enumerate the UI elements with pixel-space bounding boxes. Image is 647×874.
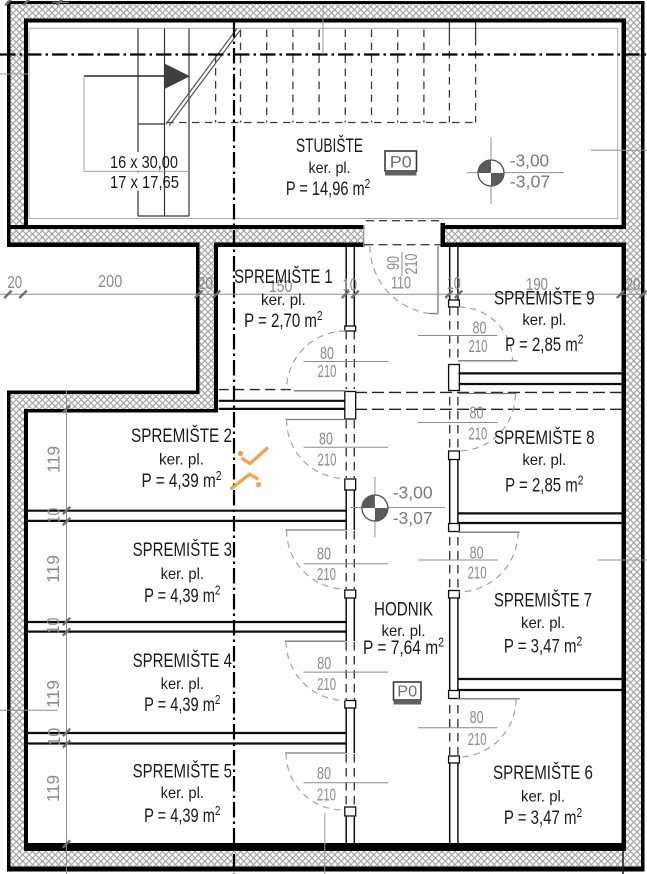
svg-text:P = 2,85 m2: P = 2,85 m2 [505,333,583,356]
svg-text:ker. pl.: ker. pl. [309,159,351,177]
svg-text:ker. pl.: ker. pl. [161,565,204,583]
svg-text:ker. pl.: ker. pl. [161,675,204,693]
svg-text:210: 210 [402,254,422,275]
svg-text:20: 20 [7,273,22,292]
svg-text:-3,00: -3,00 [510,151,549,171]
svg-text:80: 80 [320,344,334,364]
svg-text:P = 7,64 m2: P = 7,64 m2 [363,635,444,659]
svg-text:10: 10 [45,617,64,633]
svg-text:P = 4,39 m2: P = 4,39 m2 [144,583,220,606]
svg-text:STUBIŠTE: STUBIŠTE [296,135,363,157]
svg-text:SPREMIŠTE 6: SPREMIŠTE 6 [493,761,593,783]
svg-text:HODNIK: HODNIK [374,598,433,620]
svg-text:16 x 30,00: 16 x 30,00 [110,153,178,173]
svg-text:ker. pl.: ker. pl. [522,452,566,470]
svg-text:90: 90 [384,256,404,270]
svg-text:80: 80 [470,403,484,423]
svg-text:210: 210 [317,786,336,805]
svg-text:SPREMIŠTE 3: SPREMIŠTE 3 [133,539,232,560]
svg-text:P = 2,85 m2: P = 2,85 m2 [505,473,583,496]
svg-text:P0: P0 [397,683,417,701]
svg-text:ker. pl.: ker. pl. [522,312,566,330]
svg-text:-3,07: -3,07 [510,172,551,192]
svg-text:210: 210 [468,425,487,444]
svg-text:20: 20 [198,274,213,293]
svg-text:P = 14,96 m2: P = 14,96 m2 [286,178,370,200]
svg-text:80: 80 [317,764,331,784]
svg-text:80: 80 [470,708,484,728]
svg-text:119: 119 [43,680,63,708]
svg-text:210: 210 [468,564,487,583]
svg-text:210: 210 [317,676,336,695]
svg-text:P = 2,70 m2: P = 2,70 m2 [244,309,322,332]
svg-text:119: 119 [43,446,63,473]
svg-text:SPREMIŠTE 4: SPREMIŠTE 4 [133,650,233,671]
svg-text:119: 119 [43,775,63,802]
svg-text:210: 210 [469,338,488,357]
svg-text:P = 3,47 m2: P = 3,47 m2 [504,634,582,657]
svg-text:80: 80 [317,654,331,674]
svg-text:10: 10 [447,274,461,294]
svg-text:SPREMIŠTE 8: SPREMIŠTE 8 [494,426,595,448]
svg-text:210: 210 [468,731,487,750]
svg-text:ker. pl.: ker. pl. [159,451,204,468]
svg-text:SPREMIŠTE 2: SPREMIŠTE 2 [131,425,232,447]
svg-text:110: 110 [391,274,411,294]
svg-text:SPREMIŠTE 1: SPREMIŠTE 1 [234,266,333,287]
svg-text:17 x 17,65: 17 x 17,65 [110,173,179,193]
svg-text:P = 4,39 m2: P = 4,39 m2 [144,804,220,827]
svg-text:80: 80 [319,430,333,450]
svg-text:P = 3,47 m2: P = 3,47 m2 [504,806,582,829]
svg-text:SPREMIŠTE 5: SPREMIŠTE 5 [133,761,232,782]
svg-text:20: 20 [625,275,640,294]
svg-text:119: 119 [43,555,63,583]
svg-text:200: 200 [98,272,122,292]
svg-text:210: 210 [318,451,337,470]
svg-text:SPREMIŠTE 9: SPREMIŠTE 9 [494,287,595,309]
svg-text:SPREMIŠTE 7: SPREMIŠTE 7 [494,590,592,611]
svg-text:10: 10 [45,728,65,746]
svg-text:-3,07: -3,07 [393,508,433,528]
svg-text:P0: P0 [390,152,412,171]
svg-text:10: 10 [343,276,358,295]
svg-text:ker. pl.: ker. pl. [521,615,565,633]
svg-text:ker. pl.: ker. pl. [261,292,306,309]
svg-text:80: 80 [317,545,331,565]
svg-text:10: 10 [45,508,64,524]
svg-text:210: 210 [317,566,336,585]
svg-text:ker. pl.: ker. pl. [521,788,565,806]
svg-text:P = 4,39 m2: P = 4,39 m2 [142,468,222,492]
svg-text:ker. pl.: ker. pl. [161,784,204,802]
svg-text:-3,00: -3,00 [393,483,433,503]
svg-text:P = 4,39 m2: P = 4,39 m2 [144,693,220,716]
svg-text:210: 210 [318,363,337,382]
